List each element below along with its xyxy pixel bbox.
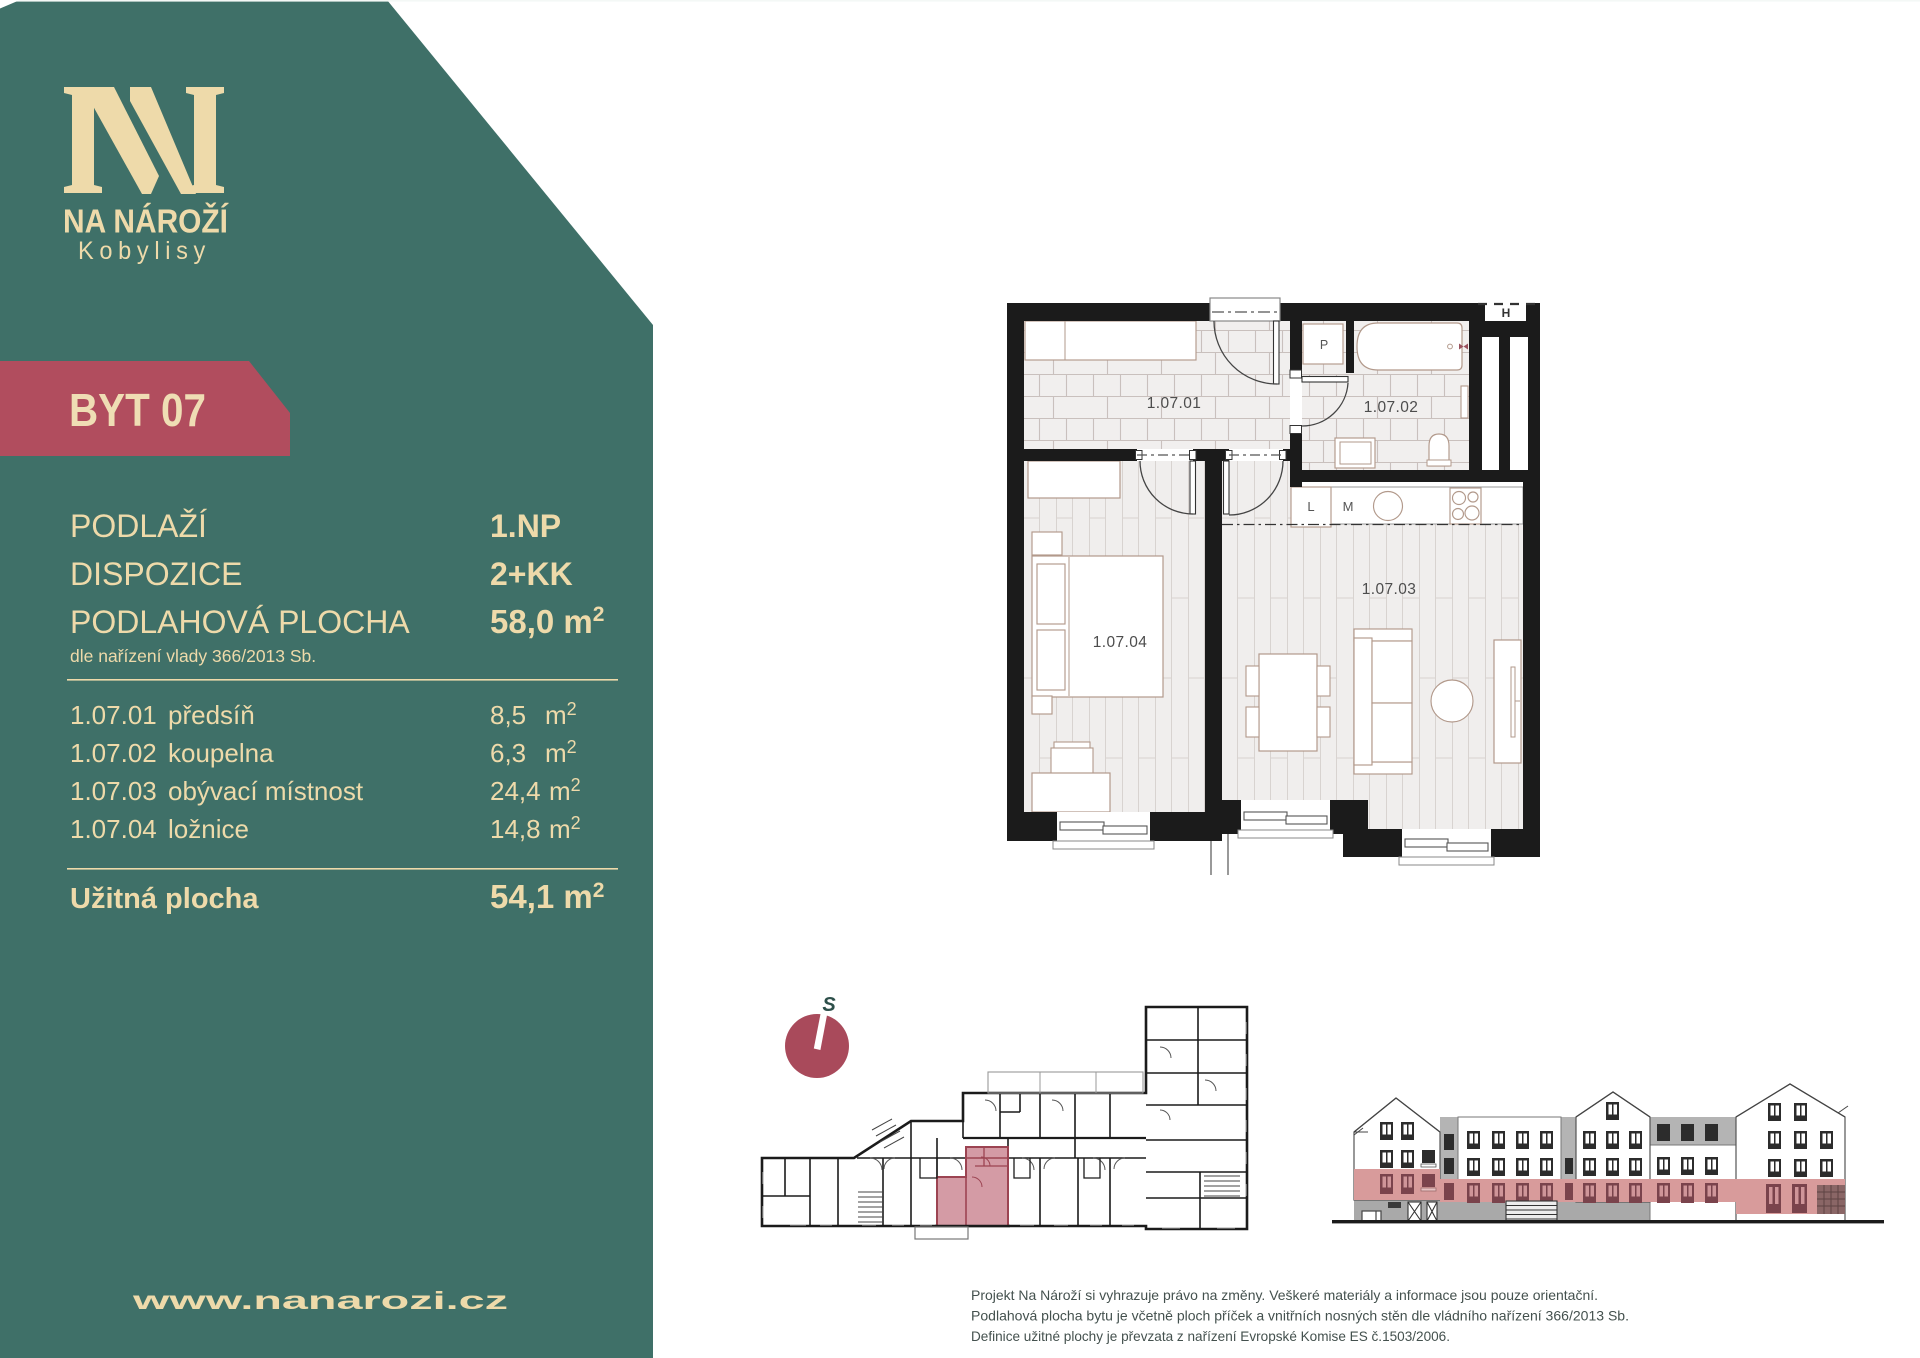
svg-text:1.07.01: 1.07.01 [1147, 395, 1202, 412]
svg-text:1.07.02: 1.07.02 [1364, 399, 1419, 416]
svg-text:6,3: 6,3 [490, 738, 526, 768]
svg-text:dle nařízení vlady 366/2013 Sb: dle nařízení vlady 366/2013 Sb. [70, 646, 316, 666]
svg-text:PODLAŽÍ: PODLAŽÍ [70, 508, 207, 544]
svg-text:BYT 07: BYT 07 [69, 384, 206, 436]
svg-text:Podlahová plocha bytu je včetn: Podlahová plocha bytu je včetně ploch př… [971, 1308, 1629, 1324]
svg-text:ložnice: ložnice [168, 814, 249, 844]
svg-text:54,1 m2: 54,1 m2 [490, 878, 604, 915]
svg-text:Definice užitné plochy je přev: Definice užitné plochy je převzata z nař… [971, 1328, 1450, 1344]
svg-text:H: H [1502, 306, 1511, 320]
svg-text:2+KK: 2+KK [490, 556, 573, 592]
svg-text:1.07.04: 1.07.04 [1093, 634, 1148, 651]
svg-text:PODLAHOVÁ PLOCHA: PODLAHOVÁ PLOCHA [70, 604, 410, 640]
svg-text:1.07.01: 1.07.01 [70, 700, 157, 730]
svg-text:koupelna: koupelna [168, 738, 274, 768]
svg-text:24,4: 24,4 [490, 776, 541, 806]
svg-text:Kobylisy: Kobylisy [78, 237, 211, 265]
svg-text:P: P [1320, 338, 1328, 352]
svg-text:14,8: 14,8 [490, 814, 541, 844]
svg-text:1.NP: 1.NP [490, 508, 561, 544]
svg-text:Projekt Na Nároží si vyhrazuje: Projekt Na Nároží si vyhrazuje právo na … [971, 1287, 1598, 1303]
svg-text:www.nanarozi.cz: www.nanarozi.cz [131, 1287, 508, 1315]
svg-text:L: L [1307, 499, 1314, 514]
svg-text:předsíň: předsíň [168, 700, 255, 730]
svg-text:NA NÁROŽÍ: NA NÁROŽÍ [63, 203, 229, 240]
svg-text:obývací místnost: obývací místnost [168, 776, 364, 806]
svg-text:DISPOZICE: DISPOZICE [70, 556, 242, 592]
svg-text:1.07.03: 1.07.03 [70, 776, 157, 806]
svg-text:M: M [1343, 499, 1354, 514]
svg-text:1.07.04: 1.07.04 [70, 814, 157, 844]
svg-text:Užitná plocha: Užitná plocha [70, 883, 259, 915]
svg-text:58,0 m2: 58,0 m2 [490, 603, 604, 640]
svg-text:1.07.03: 1.07.03 [1362, 581, 1417, 598]
svg-text:8,5: 8,5 [490, 700, 526, 730]
svg-text:1.07.02: 1.07.02 [70, 738, 157, 768]
svg-text:S: S [822, 994, 836, 1016]
